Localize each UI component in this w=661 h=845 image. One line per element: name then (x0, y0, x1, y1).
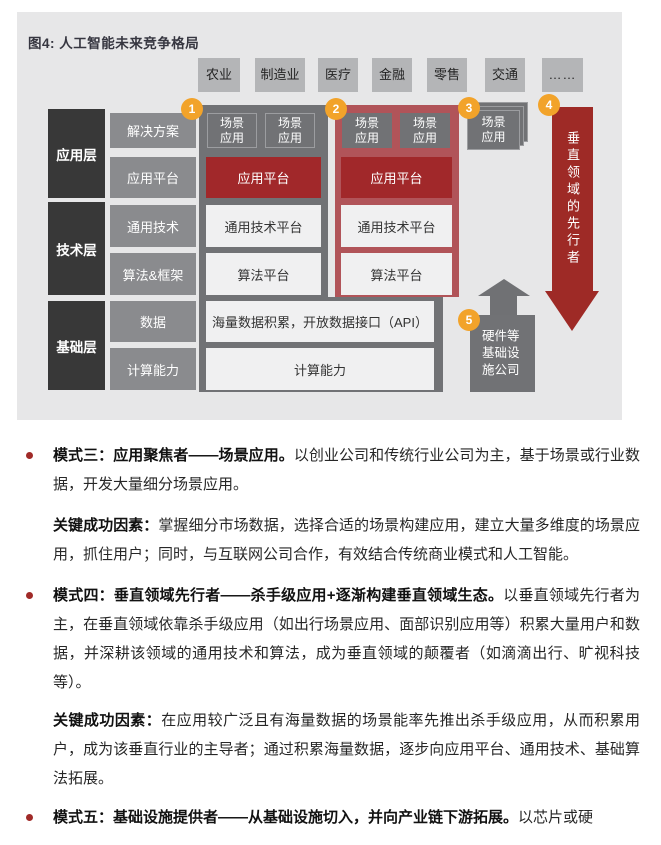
col2-app-platform-box: 应用平台 (341, 157, 452, 198)
figure-title: 图4: 人工智能未来竞争格局 (28, 32, 199, 52)
label-data: 数据 (110, 301, 196, 342)
bullet-icon (26, 814, 33, 821)
paragraph-mode4: 模式四：垂直领域先行者——杀手级应用+逐渐构建垂直领域生态。以垂直领域先行者为主… (53, 581, 640, 697)
industry-tab-agriculture: 农业 (198, 58, 240, 92)
vertical-pioneer-arrow: 垂直领域的先行者 (552, 107, 593, 291)
layer-application: 应用层 (48, 109, 105, 198)
col2-scenario-app-box: 场景应用 (400, 113, 450, 148)
col2-scenario-app-box: 场景应用 (342, 113, 392, 148)
up-arrow-shaft (490, 296, 517, 316)
massive-data-api-box: 海量数据积累，开放数据接口（API） (206, 301, 434, 342)
paragraph-mode5: 模式五：基础设施提供者——从基础设施切入，并向产业链下游拓展。以芯片或硬 (53, 803, 640, 832)
figure-ai-competitive-landscape: 图4: 人工智能未来竞争格局 农业 制造业 医疗 金融 零售 交通 …… 应用层… (17, 12, 622, 420)
label-algo-framework: 算法&框架 (110, 253, 196, 295)
label-app-platform: 应用平台 (110, 157, 196, 198)
paragraph-mode4-success-factors: 关键成功因素：在应用较广泛且有海量数据的场景能率先推出杀手级应用，从而积累用户，… (53, 706, 640, 793)
badge-2: 2 (325, 98, 347, 120)
col1-app-platform-box: 应用平台 (206, 157, 321, 198)
layer-technology: 技术层 (48, 202, 105, 295)
bullet-icon (26, 452, 33, 459)
industry-tab-finance: 金融 (372, 58, 412, 92)
col1-scenario-app-box: 场景应用 (207, 113, 257, 148)
report-page: 图4: 人工智能未来竞争格局 农业 制造业 医疗 金融 零售 交通 …… 应用层… (0, 0, 661, 845)
industry-tab-manufacturing: 制造业 (255, 58, 305, 92)
col1-tech-platform-box: 通用技术平台 (206, 205, 321, 247)
badge-5: 5 (458, 309, 480, 331)
vertical-pioneer-label: 垂直领域的先行者 (563, 131, 582, 267)
layer-foundation: 基础层 (48, 301, 105, 390)
industry-tab-more: …… (542, 58, 583, 92)
col1-algo-platform-box: 算法平台 (206, 253, 321, 295)
label-solutions: 解决方案 (110, 113, 196, 148)
up-arrowhead-icon (478, 279, 530, 296)
col2-tech-platform-box: 通用技术平台 (341, 205, 452, 247)
industry-tab-retail: 零售 (427, 58, 467, 92)
bullet-icon (26, 592, 33, 599)
body-text: 模式三：应用聚焦者——场景应用。以创业公司和传统行业公司为主，基于场景或行业数据… (53, 420, 640, 832)
compute-power-box: 计算能力 (206, 348, 434, 390)
badge-1: 1 (181, 98, 203, 120)
label-compute: 计算能力 (110, 348, 196, 390)
col2-algo-platform-box: 算法平台 (341, 253, 452, 295)
badge-4: 4 (538, 94, 560, 116)
col1-scenario-app-box: 场景应用 (265, 113, 315, 148)
label-general-tech: 通用技术 (110, 205, 196, 247)
badge-3: 3 (458, 97, 480, 119)
paragraph-mode3-success-factors: 关键成功因素：掌握细分市场数据，选择合适的场景构建应用，建立大量多维度的场景应用… (53, 511, 640, 569)
down-arrowhead-icon (545, 291, 599, 331)
industry-tab-medical: 医疗 (318, 58, 358, 92)
hardware-infrastructure-box: 硬件等基础设施公司 (470, 315, 535, 392)
paragraph-mode3: 模式三：应用聚焦者——场景应用。以创业公司和传统行业公司为主，基于场景或行业数据… (53, 441, 640, 499)
industry-tab-transport: 交通 (485, 58, 525, 92)
